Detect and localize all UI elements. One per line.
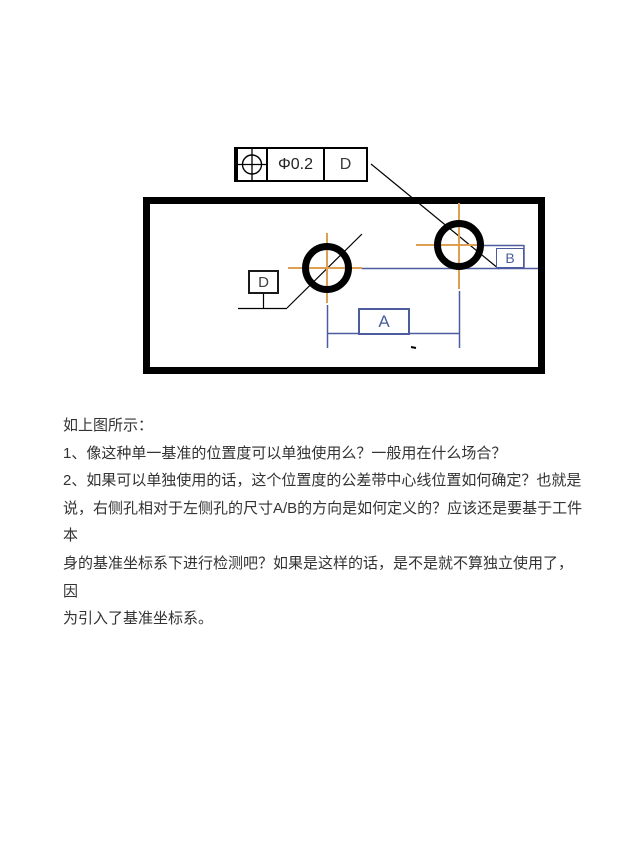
position-tolerance-icon [238, 149, 268, 180]
question-text: 如上图所示： 1、像这种单一基准的位置度可以单独使用么？一般用在什么场合？ 2、… [63, 412, 583, 633]
datum-d-label: D [248, 270, 279, 294]
question-line: 为引入了基准坐标系。 [63, 605, 583, 633]
question-line: 说，右侧孔相对于左侧孔的尺寸A/B的方向是如何定义的？应该还是要基于工件本 [63, 495, 583, 550]
datum-reference: D [325, 149, 366, 180]
feature-control-frame: Φ0.2 D [234, 147, 368, 182]
dimension-b-label: B [496, 248, 524, 268]
tolerance-value: Φ0.2 [268, 149, 325, 180]
question-line: 身的基准坐标系下进行检测吧？如果是这样的话，是不是就不算独立使用了，因 [63, 550, 583, 605]
question-line: 如上图所示： [63, 412, 583, 440]
page: Φ0.2 D D A B 如上图所示： 1、像这种单一基准的位置度可以单独使用么… [0, 0, 632, 864]
question-line: 2、如果可以单独使用的话，这个位置度的公差带中心线位置如何确定？也就是 [63, 467, 583, 495]
dimension-a-label: A [358, 308, 410, 335]
question-line: 1、像这种单一基准的位置度可以单独使用么？一般用在什么场合？ [63, 440, 583, 468]
